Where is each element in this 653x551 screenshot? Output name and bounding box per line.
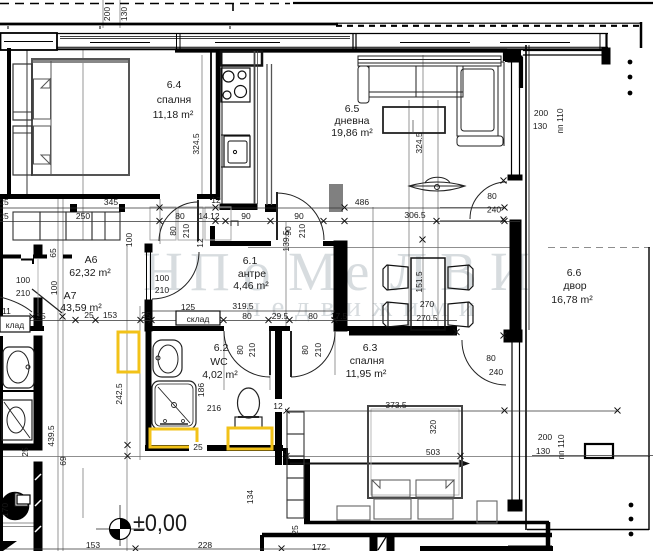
- svg-text:двор: двор: [563, 280, 586, 292]
- svg-text:80: 80: [300, 345, 310, 355]
- svg-text:270.5: 270.5: [416, 313, 438, 323]
- svg-text:306.5: 306.5: [404, 210, 426, 220]
- svg-text:200: 200: [534, 108, 548, 118]
- svg-text:25: 25: [84, 310, 94, 320]
- svg-text:11,95 m²: 11,95 m²: [346, 368, 387, 380]
- svg-text:170: 170: [0, 503, 10, 517]
- svg-text:4,02 m²: 4,02 m²: [202, 369, 238, 381]
- svg-text:210: 210: [16, 288, 30, 298]
- svg-text:439.5: 439.5: [46, 425, 56, 447]
- svg-text:100: 100: [124, 233, 134, 247]
- svg-text:324.5: 324.5: [414, 132, 424, 154]
- svg-text:спалня: спалня: [157, 94, 191, 106]
- svg-text:134: 134: [245, 490, 255, 504]
- svg-text:12: 12: [195, 238, 205, 248]
- svg-text:373.5: 373.5: [385, 400, 407, 410]
- svg-text:200: 200: [538, 432, 552, 442]
- svg-text:WC: WC: [210, 356, 228, 368]
- svg-text:69: 69: [58, 456, 68, 466]
- svg-text:320: 320: [428, 420, 438, 434]
- svg-text:12: 12: [273, 401, 283, 411]
- svg-text:25: 25: [0, 197, 9, 207]
- svg-text:151.5: 151.5: [414, 271, 424, 293]
- svg-text:дневна: дневна: [335, 115, 370, 127]
- svg-text:210: 210: [297, 224, 307, 238]
- svg-text:345: 345: [104, 197, 118, 207]
- svg-text:25: 25: [290, 525, 300, 535]
- svg-text:спалня: спалня: [350, 355, 384, 367]
- svg-text:А7: А7: [64, 290, 77, 302]
- svg-text:4,46 m²: 4,46 m²: [233, 280, 269, 292]
- svg-text:14.12: 14.12: [198, 211, 220, 221]
- svg-text:80: 80: [175, 211, 185, 221]
- svg-text:12: 12: [211, 195, 221, 205]
- svg-text:25: 25: [36, 311, 46, 321]
- svg-text:270: 270: [420, 299, 434, 309]
- svg-text:80: 80: [308, 311, 318, 321]
- svg-text:228: 228: [198, 540, 212, 550]
- svg-text:43,59 m²: 43,59 m²: [60, 302, 102, 314]
- svg-text:210: 210: [155, 285, 169, 295]
- svg-text:216: 216: [207, 403, 221, 413]
- svg-text:25: 25: [141, 310, 151, 320]
- svg-text:6.4: 6.4: [167, 79, 182, 91]
- svg-text:172: 172: [312, 542, 326, 551]
- svg-text:90: 90: [294, 211, 304, 221]
- svg-text:100: 100: [16, 275, 30, 285]
- svg-text:19,86 m²: 19,86 m²: [331, 127, 373, 139]
- svg-text:200: 200: [102, 7, 112, 21]
- svg-text:210: 210: [313, 343, 323, 357]
- svg-text:17.5: 17.5: [331, 311, 348, 321]
- svg-text:90: 90: [241, 211, 251, 221]
- svg-text:324.5: 324.5: [191, 133, 201, 155]
- svg-text:319.5: 319.5: [232, 301, 254, 311]
- svg-text:503: 503: [426, 447, 440, 457]
- svg-text:130: 130: [536, 446, 550, 456]
- svg-text:250: 250: [76, 211, 90, 221]
- svg-text:80: 80: [168, 226, 178, 236]
- svg-text:210: 210: [247, 343, 257, 357]
- svg-text:100: 100: [49, 281, 59, 295]
- svg-text:25: 25: [0, 211, 9, 221]
- svg-text:80: 80: [487, 191, 497, 201]
- svg-text:А6: А6: [85, 254, 98, 266]
- svg-text:240: 240: [487, 205, 501, 215]
- svg-text:80: 80: [242, 311, 252, 321]
- svg-text:6.2: 6.2: [214, 342, 229, 354]
- svg-text:клад: клад: [6, 320, 25, 330]
- svg-text:6.3: 6.3: [363, 342, 378, 354]
- svg-text:25: 25: [193, 442, 203, 452]
- svg-text:29.5: 29.5: [272, 311, 289, 321]
- svg-text:80: 80: [486, 353, 496, 363]
- svg-text:П: П: [190, 241, 230, 302]
- svg-text:242.5: 242.5: [114, 383, 124, 405]
- svg-text:±0,00: ±0,00: [133, 510, 187, 537]
- svg-text:153: 153: [103, 310, 117, 320]
- svg-text:11,18 m²: 11,18 m²: [153, 109, 194, 121]
- svg-text:пп 110: пп 110: [555, 108, 565, 133]
- svg-text:486: 486: [355, 197, 369, 207]
- svg-text:62,32 m²: 62,32 m²: [69, 267, 111, 279]
- svg-text:6.6: 6.6: [567, 267, 582, 279]
- svg-text:склад: склад: [187, 314, 210, 324]
- svg-text:6.5: 6.5: [345, 103, 360, 115]
- svg-text:16,78 m²: 16,78 m²: [551, 294, 593, 306]
- svg-text:100: 100: [155, 273, 169, 283]
- svg-text:антре: антре: [238, 268, 266, 280]
- svg-text:186: 186: [196, 383, 206, 397]
- svg-text:6.1: 6.1: [243, 255, 258, 267]
- svg-text:240: 240: [489, 367, 503, 377]
- svg-text:130: 130: [119, 7, 129, 21]
- svg-text:139.5: 139.5: [281, 230, 291, 252]
- svg-text:153: 153: [86, 540, 100, 550]
- svg-text:65: 65: [48, 248, 58, 258]
- svg-text:25: 25: [20, 447, 30, 457]
- svg-text:80: 80: [235, 345, 245, 355]
- svg-text:130: 130: [533, 121, 547, 131]
- svg-text:11: 11: [2, 306, 11, 316]
- svg-text:210: 210: [181, 224, 191, 238]
